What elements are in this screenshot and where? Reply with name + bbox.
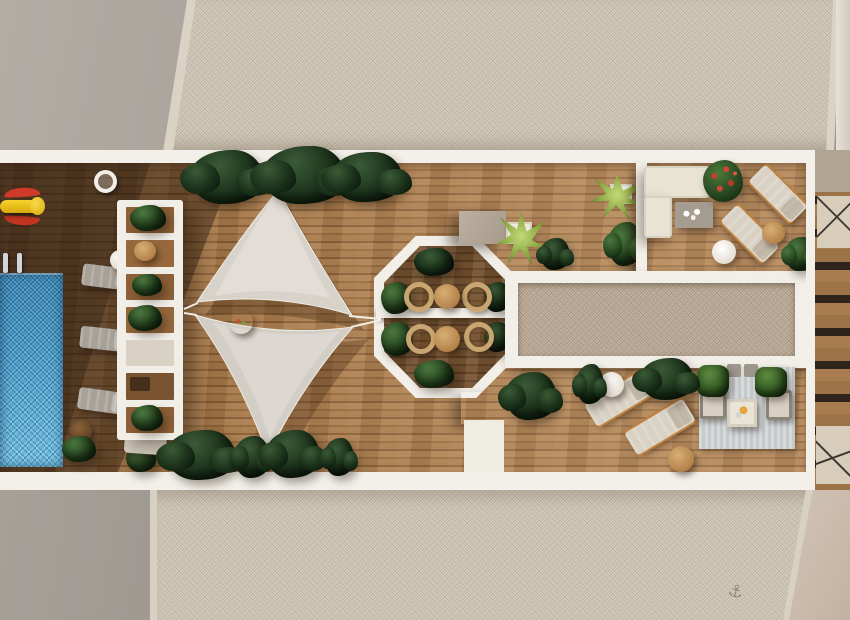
octagon-bush [414,248,454,276]
terrace-right-edge [806,150,815,490]
gravel-bed [505,271,808,368]
pavilion-chair [406,324,436,354]
rooftop-render: ⚓ [0,0,850,620]
octagon-pavilion [374,236,518,398]
corner-sofa-chaise [644,196,672,238]
pool-bush [62,436,96,462]
hedge-bush [505,372,557,420]
swimming-pool [0,273,63,467]
cube-bush [755,367,787,397]
pergola-cell [126,274,174,300]
float-nose [30,197,45,215]
side-table [668,446,694,472]
float-wing-bottom [4,215,41,226]
roof-bottom: ⚓ [0,488,850,620]
side-table [762,222,785,244]
pavilion-chair [462,282,492,312]
hedge-bush [640,358,694,400]
pergola-plant [131,405,163,431]
pool-float-toy [0,188,46,226]
terrace [0,150,850,490]
gravel-bed-fill [518,283,795,356]
roof-top-gravel [0,0,850,152]
hedge-bush [266,430,320,478]
fire-table [727,399,757,427]
tray-table [712,240,736,264]
pool-ladder-rail [17,253,22,273]
entry-block-top [459,211,506,244]
pavilion-chair [404,282,434,312]
entry-path [464,420,504,472]
deck-bush [540,238,570,270]
hedge-bush [331,152,403,202]
pergola-cell [126,207,174,233]
stair-top-slab [815,150,850,192]
deck-lamp [94,170,117,193]
pergola-plant [128,305,162,331]
pergola-plant [132,274,162,296]
pergola-cell [126,240,174,266]
flowering-bush [703,160,743,202]
stair-landing [817,196,850,248]
stair-landing [816,426,850,484]
roof-top [0,0,850,152]
pavilion-table [434,326,460,352]
hedge-bush [324,438,354,476]
cube-bush [697,365,729,397]
pergola-cell [126,307,174,333]
roof-top-right-strip [836,0,850,152]
pergola-cell [126,407,174,433]
octagon-bush [414,360,454,388]
pergola-trellis [117,200,183,440]
pavilion-table [434,284,460,309]
neighbour-stairs [815,150,850,490]
roof-bottom-gravel [0,488,850,620]
coffee-table [675,202,713,228]
hedge-bush [166,430,236,480]
sail-side-table [229,310,253,334]
pergola-chair-shadow [130,377,150,391]
corner-sofa-seat [644,166,710,198]
pavilion-chair [464,322,494,352]
hedge-bush [576,364,604,404]
pergola-plant [130,205,166,231]
pool-ladder [3,253,8,273]
pergola-cell [126,373,174,399]
pergola-cell [126,340,174,366]
pergola-table [134,241,156,261]
rug-chair-back [727,364,741,377]
